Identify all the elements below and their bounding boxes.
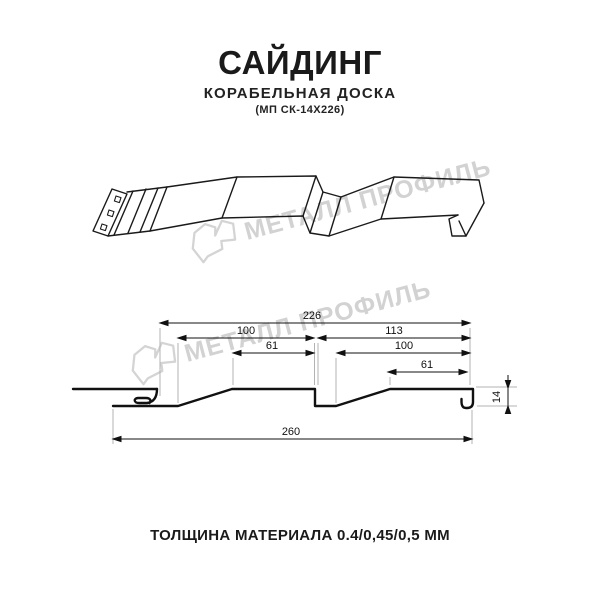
technical-drawing: 226 100 113 61 100 61 14 260 (0, 0, 600, 600)
material-thickness-text: ТОЛЩИНА МАТЕРИАЛА 0.4/0,45/0,5 ММ (0, 527, 600, 544)
dim-label-226: 226 (303, 310, 321, 322)
dimension-labels: 226 100 113 61 100 61 14 260 (237, 310, 503, 438)
cross-section-profile (73, 389, 473, 408)
extension-lines (113, 328, 517, 444)
dimension-lines (113, 320, 511, 441)
dim-label-100-left: 100 (237, 325, 255, 337)
dim-label-61-left: 61 (266, 340, 278, 352)
dim-label-113: 113 (385, 325, 403, 337)
dim-label-61-right: 61 (421, 359, 433, 371)
isometric-profile-view (93, 176, 484, 236)
dim-label-100-right: 100 (395, 340, 413, 352)
dim-label-260: 260 (282, 426, 300, 438)
dim-label-14: 14 (491, 391, 503, 403)
